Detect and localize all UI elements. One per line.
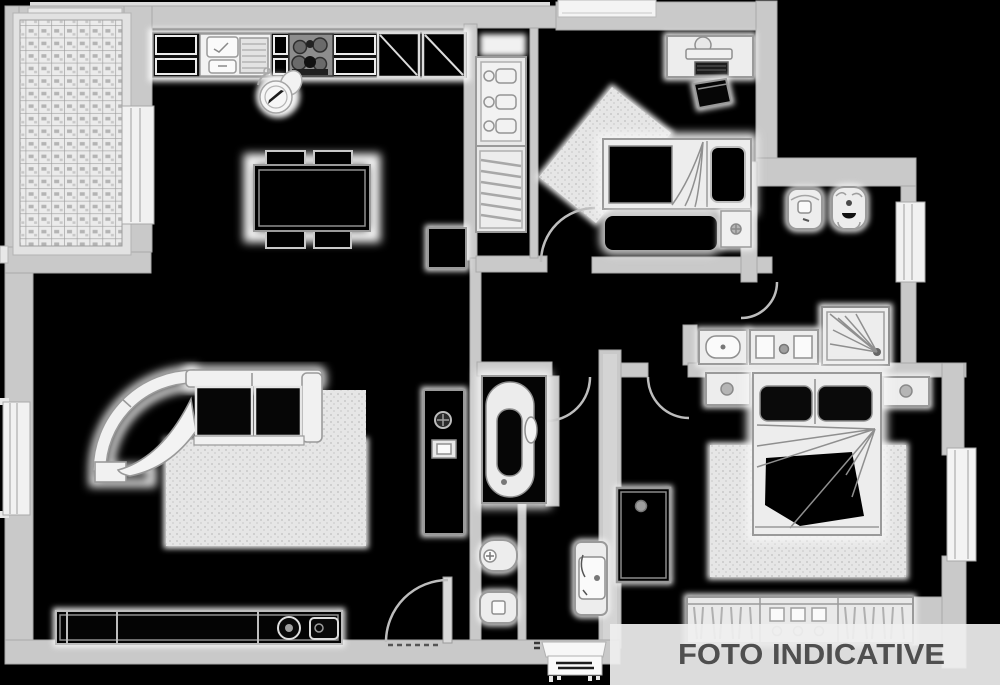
svg-text:FOTO INDICATIVE: FOTO INDICATIVE — [678, 639, 945, 671]
